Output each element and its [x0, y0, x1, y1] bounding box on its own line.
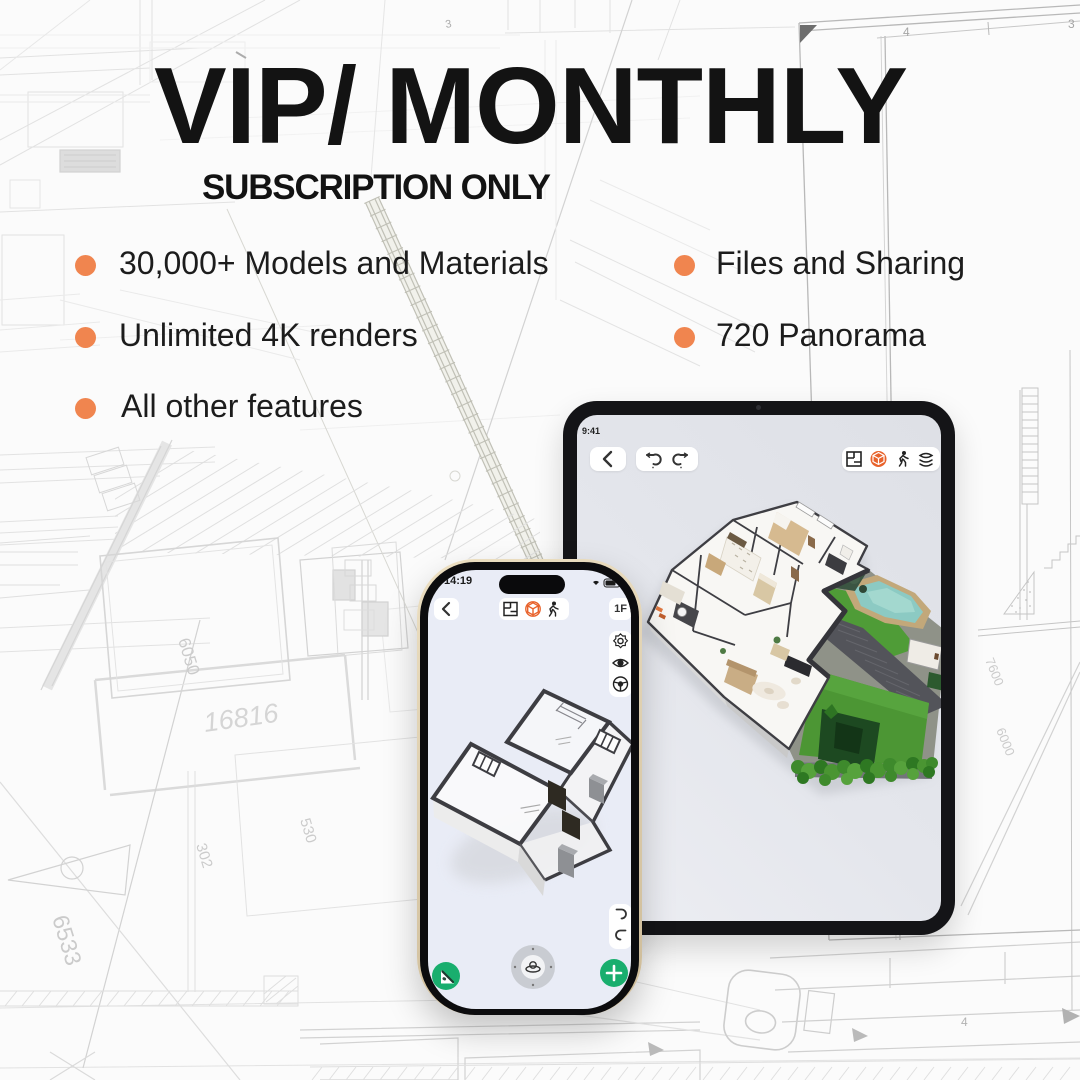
svg-text:16816: 16816	[202, 698, 281, 738]
svg-text:6533: 6533	[47, 912, 87, 969]
svg-text:3: 3	[444, 18, 452, 31]
svg-text:530: 530	[296, 816, 320, 845]
svg-text:302: 302	[192, 841, 216, 870]
svg-text:7600: 7600	[982, 656, 1007, 688]
svg-text:6000: 6000	[993, 726, 1018, 758]
svg-text:3: 3	[1068, 17, 1075, 31]
svg-text:4: 4	[961, 1015, 968, 1029]
svg-text:4: 4	[903, 25, 910, 39]
